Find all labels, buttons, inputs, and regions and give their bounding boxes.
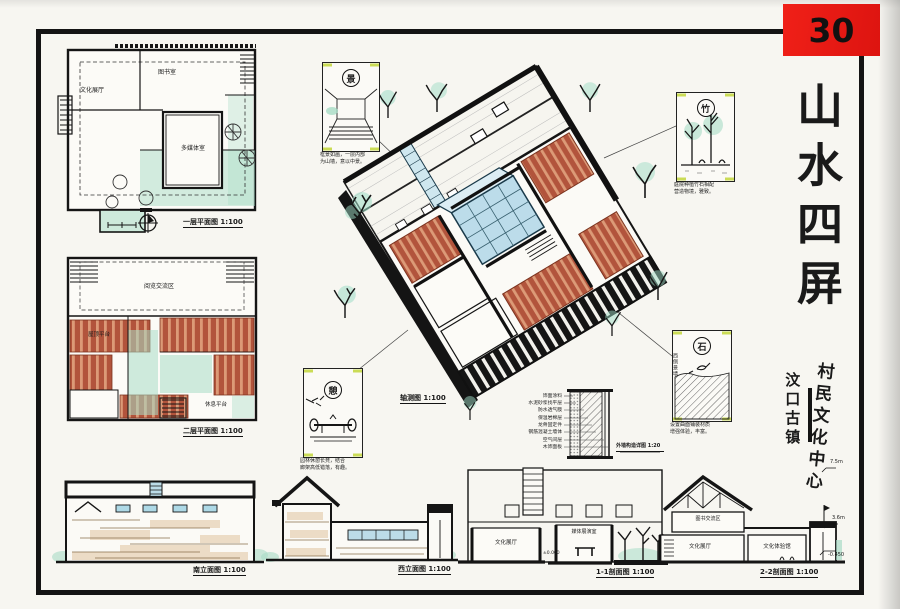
detail-box-bamboo: 竹: [676, 92, 735, 182]
section1-room-mid: 媒体展演室: [558, 530, 610, 536]
detail-box-stone: 石 西侧景墙: [672, 330, 732, 422]
detail-bamboo-caption2: 营造物境，雅致。: [674, 190, 738, 196]
detail-stone-caption2: 增强体验，丰富。: [670, 430, 736, 436]
scan-shadow-top: [0, 0, 900, 8]
detail-view-caption1: 框景如画，一层内部: [320, 153, 384, 159]
wall-layer-5: 龙骨固定件: [500, 421, 562, 428]
section2-level-mid: 3.6m: [832, 516, 845, 522]
wall-layer-8: 木饰面板: [500, 443, 562, 450]
detail-bench-caption1: 园林休憩长凳，结合: [300, 459, 370, 465]
section1-caption: 1-1剖面图 1:100: [596, 568, 654, 578]
south-elevation: [55, 470, 265, 575]
west-elevation-caption: 西立面图 1:100: [398, 565, 451, 575]
section2-room-right: 文化体验馆: [750, 544, 804, 550]
south-elevation-caption: 南立面图 1:100: [193, 566, 246, 576]
wall-layer-4: 保温岩棉层: [500, 414, 562, 421]
wall-layer-2: 水泥砂浆找平层: [500, 399, 562, 406]
sheet-number: 30: [809, 11, 855, 50]
detail-bench-tag: 憩: [324, 381, 342, 399]
plan1-room-media: 多媒体室: [168, 146, 218, 153]
axon-caption: 轴测图 1:100: [400, 394, 446, 404]
section-1-1: [453, 455, 671, 577]
subtitle-town: 汶口古镇: [783, 372, 800, 462]
detail-bamboo-tag: 竹: [697, 99, 715, 117]
section2-level-top: 7.5m: [830, 460, 843, 466]
section2-room-top: 图书交流区: [680, 517, 736, 523]
first-floor-plan: [55, 35, 267, 243]
plan1-caption: 一层平面图 1:100: [183, 218, 243, 228]
plan2-room-terrace: 屋顶平台: [88, 332, 110, 338]
wall-layer-3: 防水透气膜: [500, 406, 562, 413]
second-floor-plan: [58, 250, 268, 450]
scan-shadow-right: [878, 0, 900, 609]
section2-room-left: 文化展厅: [672, 544, 728, 550]
wall-layer-7: 空气间层: [500, 436, 562, 443]
west-elevation: [262, 468, 460, 576]
building-mass: [344, 66, 666, 397]
detail-bamboo-caption1: 庭院种植竹石相配: [674, 183, 738, 189]
section2-level-bottom: -0.450: [828, 553, 844, 559]
section1-room-left: 文化展厅: [480, 540, 532, 546]
plan2-room-rest: 休息平台: [205, 402, 227, 408]
sheet-number-tag: 30: [783, 4, 880, 56]
presentation-board: 30 山水四屏 汶口古镇 村民文化中心: [0, 0, 900, 609]
plan1-room-exhibition: 文化展厅: [80, 88, 104, 95]
detail-stone-side-note: 西侧景墙: [672, 353, 679, 377]
wall-layer-1: 饰面涂料: [500, 392, 562, 399]
section1-level: ±0.000: [543, 551, 560, 556]
section-2-2: [648, 450, 853, 585]
detail-box-bench: 憩: [303, 368, 363, 458]
main-title: 山水四屏: [781, 82, 843, 392]
detail-view-caption2: 为山墙，意以中景。: [320, 160, 384, 166]
detail-stone-tag: 石: [693, 337, 711, 355]
plan1-room-library: 图书室: [158, 70, 206, 77]
wall-layer-6: 钢筋混凝土墙体: [500, 428, 562, 435]
detail-box-view: 景: [322, 62, 380, 152]
plan2-caption: 二层平面图 1:100: [183, 427, 243, 437]
detail-view-tag: 景: [342, 69, 360, 87]
section2-caption: 2-2剖面图 1:100: [760, 568, 818, 578]
plan2-room-reading: 阅览交流区: [128, 284, 190, 291]
detail-stone-caption1: 设置曲面铺装材质: [670, 423, 736, 429]
